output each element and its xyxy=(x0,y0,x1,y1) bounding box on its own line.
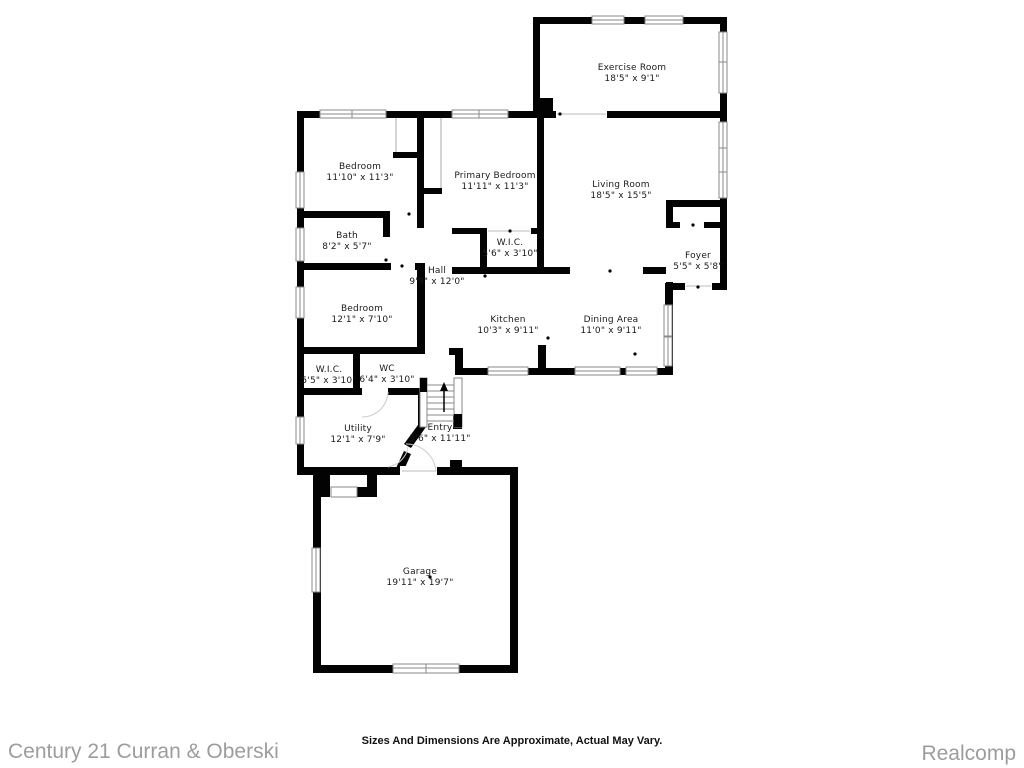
room-label-exercise-room: Exercise Room18'5" x 9'1" xyxy=(562,63,702,85)
room-label-wic-primary: W.I.C.5'6" x 3'10" xyxy=(440,238,580,260)
room-label-garage: Garage19'11" x 19'7" xyxy=(350,567,490,589)
room-label-bath: Bath8'2" x 5'7" xyxy=(277,231,417,253)
room-label-entry: Entry5'6" x 11'11" xyxy=(370,423,510,445)
floorplan-page: Exercise Room18'5" x 9'1" Bedroom11'10" … xyxy=(0,0,1024,768)
room-label-bedroom-1: Bedroom11'10" x 11'3" xyxy=(290,162,430,184)
room-label-primary-bedroom: Primary Bedroom11'11" x 11'3" xyxy=(425,171,565,193)
room-label-hall: Hall9'9" x 12'0" xyxy=(367,266,507,288)
floorplan-drawing xyxy=(0,0,1024,768)
room-label-bedroom-2: Bedroom12'1" x 7'10" xyxy=(292,304,432,326)
room-label-dining-area: Dining Area11'0" x 9'11" xyxy=(541,315,681,337)
room-label-living-room: Living Room18'5" x 15'5" xyxy=(551,180,691,202)
mls-provider-logo-text: Realcomp xyxy=(921,742,1016,766)
listing-brokerage-name: Century 21 Curran & Oberski xyxy=(8,740,279,764)
opening-threshold-lines xyxy=(402,114,711,471)
room-label-foyer: Foyer5'5" x 5'8" xyxy=(628,251,768,273)
room-label-wc: WC6'4" x 3'10" xyxy=(317,364,457,386)
